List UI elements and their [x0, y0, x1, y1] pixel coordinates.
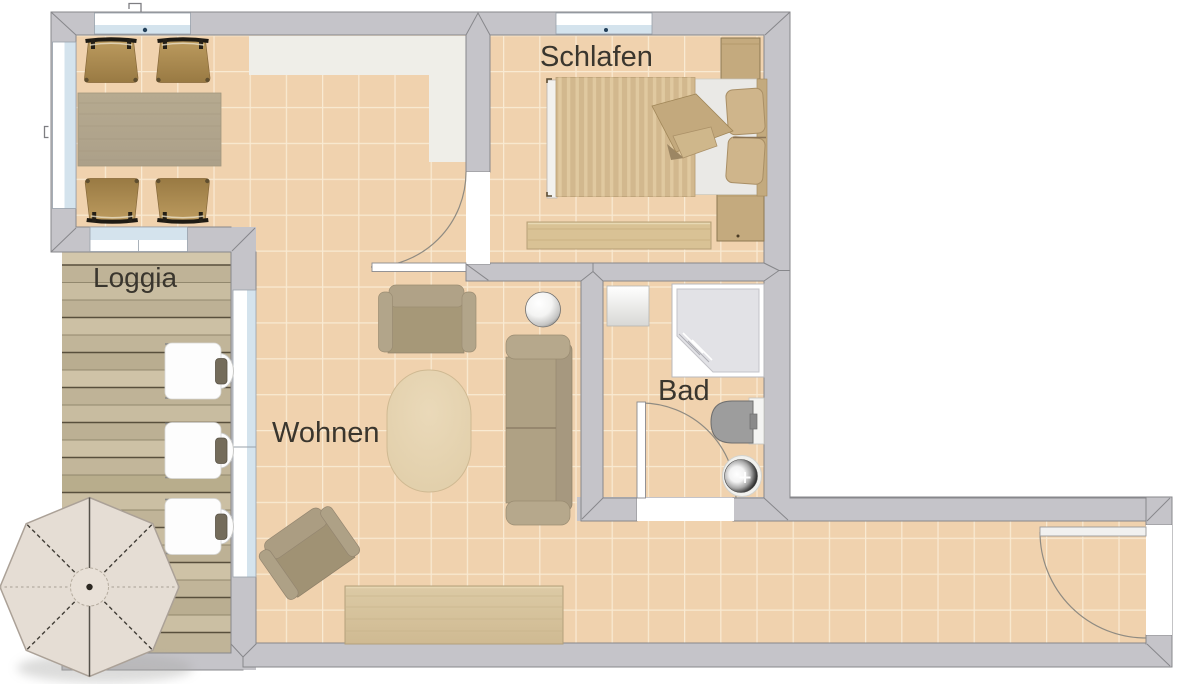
svg-text:Wohnen: Wohnen: [272, 417, 380, 449]
svg-text:Schlafen: Schlafen: [540, 41, 653, 73]
svg-text:Loggia: Loggia: [93, 262, 178, 293]
svg-text:Bad: Bad: [658, 375, 710, 407]
